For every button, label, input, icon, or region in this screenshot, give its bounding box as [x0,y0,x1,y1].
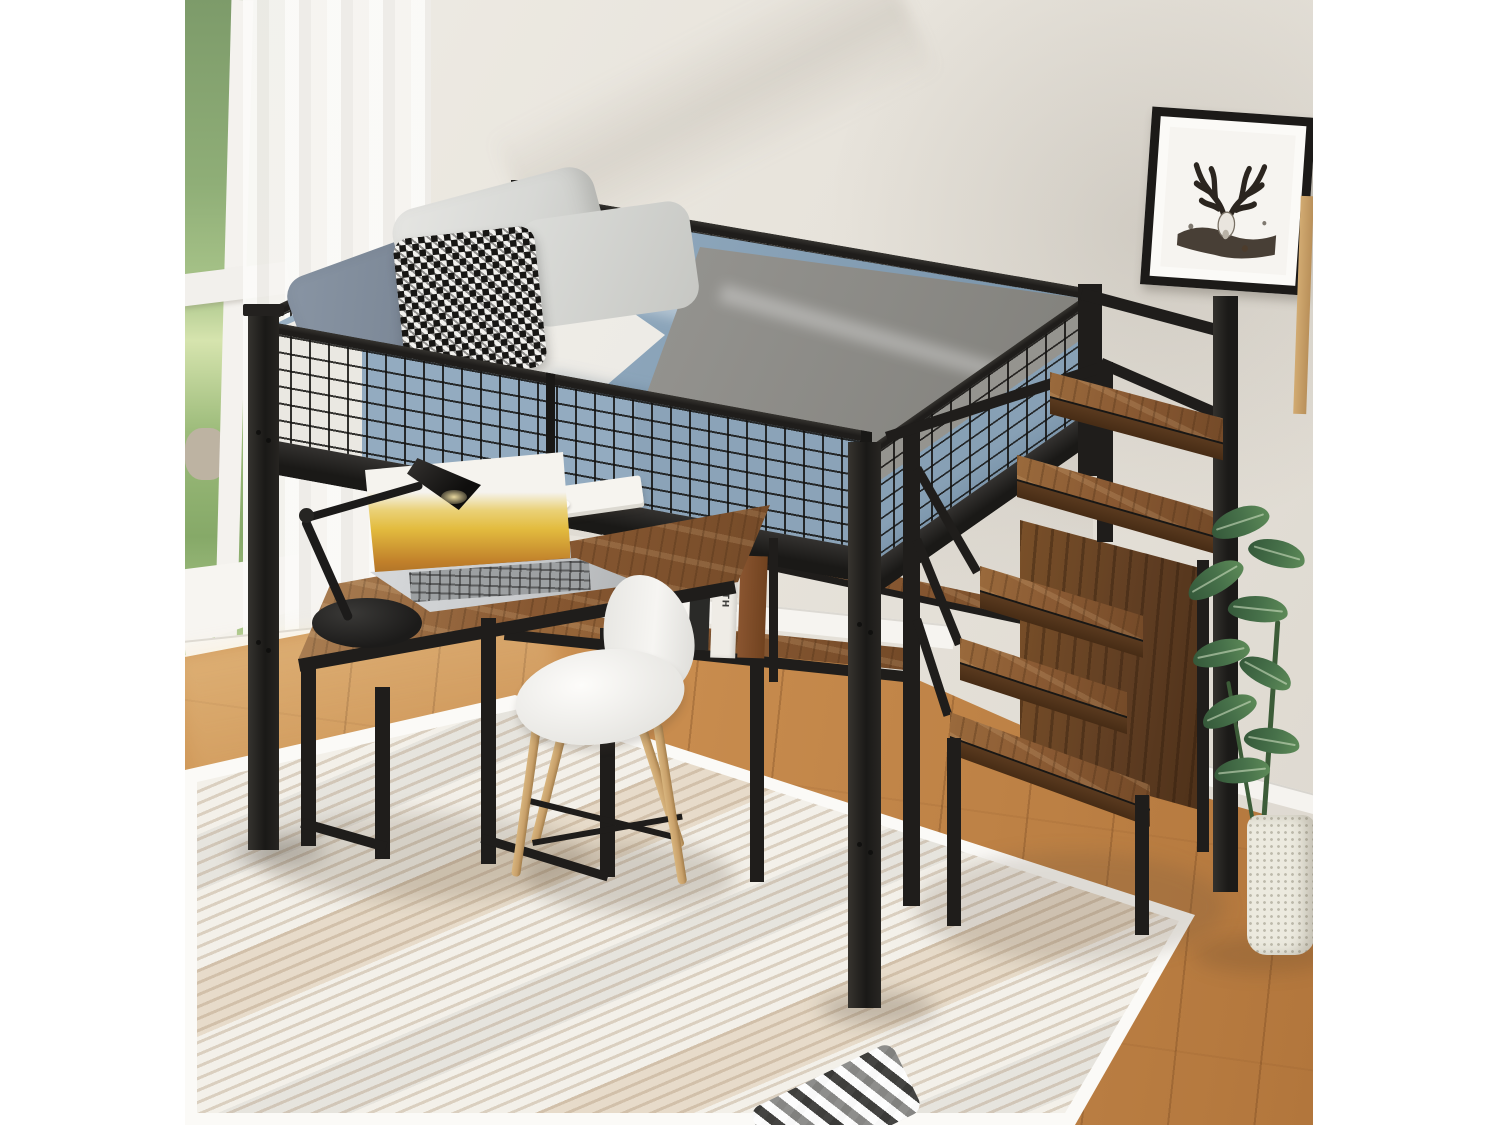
stair-left-post [903,428,920,906]
deer-antler-skull-art [1160,127,1295,275]
post-bolt [868,850,873,855]
stair-front-leg [947,738,961,926]
left-white-margin [0,0,185,1125]
plant-leaf [1242,723,1301,757]
right-white-margin [1313,0,1500,1125]
return-desk-leg [750,650,764,882]
plant-leaf [1227,593,1289,625]
hutch-upright-frame [769,538,778,682]
desk-leg-back-left [375,687,390,859]
plant-leaf [1246,533,1309,574]
lamp-bulb-glow [441,490,467,504]
plant-leaf [1207,499,1273,544]
post-bolt [256,430,261,435]
leaf-vein [1245,661,1287,685]
post-bolt [868,630,873,635]
post-bolt [857,622,862,627]
lamp-joint [299,508,314,523]
leaf-vein [1249,735,1296,745]
post-bolt [256,640,261,645]
bed-post-front-left-cap [243,304,284,316]
plant-stem-1 [1261,620,1281,830]
leaf-vein [1216,513,1265,530]
lamp-arm-upper [306,481,424,522]
potted-plant [1170,500,1313,970]
leaf-vein [1192,566,1238,594]
leaf-vein [1218,767,1265,774]
antler-art-frame [1140,106,1313,295]
stair-mid-leg [1135,795,1149,935]
product-photo-stage: MACBETH [0,0,1500,1125]
chair-shadow [525,842,735,912]
leaf-vein [1206,700,1251,722]
woven-basket-pot [1247,815,1313,955]
post-bolt [266,648,271,653]
bed-post-front-right [848,442,881,1008]
lamp-base [312,598,422,648]
leaf-vein [1253,545,1300,560]
post-bolt [266,438,271,443]
post-bolt [857,842,862,847]
antler-art-print [1160,127,1295,275]
bed-post-front-left [248,310,279,850]
leaf-vein [1233,605,1283,612]
room-scene-photo: MACBETH [185,0,1313,1125]
leaf-vein [1197,647,1245,659]
plant-leaf [1213,755,1271,786]
desk-lamp [285,450,525,670]
